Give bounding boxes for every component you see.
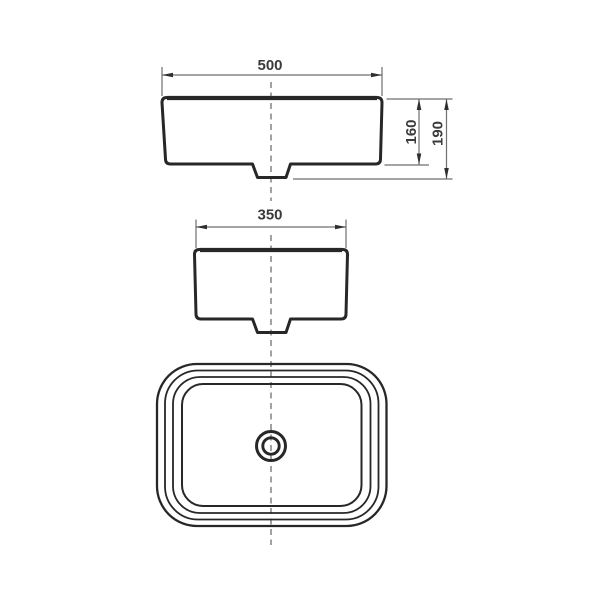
dim-160-label: 160: [403, 119, 420, 144]
dim-160-arrow-bottom: [417, 154, 422, 165]
front-view: [162, 98, 382, 178]
dim-500-label: 500: [257, 57, 282, 74]
dimension-front-width: 500: [162, 57, 382, 96]
dim-350-arrow-left: [196, 225, 207, 230]
plan-second-rim-line: [165, 371, 379, 520]
dimension-side-depth: 350: [196, 207, 346, 249]
dim-500-arrow-right: [371, 73, 382, 78]
dimension-heights: 160 190: [293, 99, 453, 179]
dim-500-arrow-left: [162, 73, 173, 78]
dim-350-arrow-right: [335, 225, 346, 230]
dim-350-label: 350: [257, 207, 282, 224]
plan-third-rim-line: [173, 377, 371, 513]
dim-190-label: 190: [430, 121, 447, 146]
plan-view: [157, 364, 387, 526]
dim-160-arrow-top: [417, 99, 422, 110]
front-view-outline: [162, 98, 382, 178]
plan-inner-bowl-line: [182, 384, 362, 506]
washbasin-technical-drawing: 500 160 190 350: [0, 0, 600, 600]
dim-190-arrow-top: [444, 99, 449, 110]
dim-190-arrow-bottom: [444, 168, 449, 179]
drawing-canvas: 500 160 190 350: [0, 0, 600, 600]
